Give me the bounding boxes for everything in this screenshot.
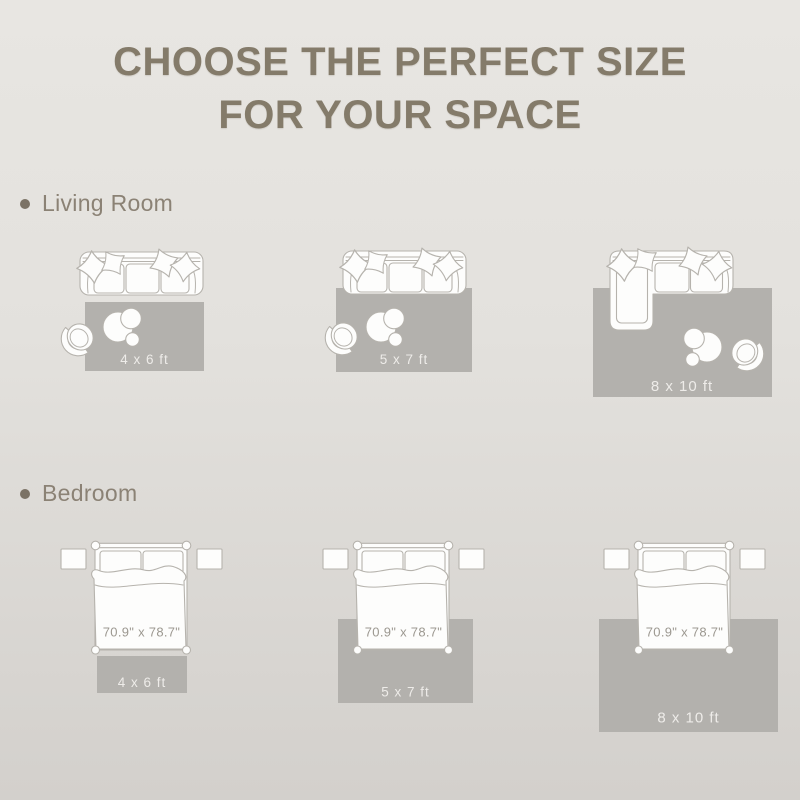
- page-title: CHOOSE THE PERFECT SIZE FOR YOUR SPACE: [0, 36, 800, 142]
- title-line-2: FOR YOUR SPACE: [0, 89, 800, 142]
- rug-size-label: 8 x 10 ft: [657, 710, 719, 727]
- bed-dimension-label: 70.9" x 78.7": [365, 625, 443, 640]
- section-label-bedroom: Bedroom: [20, 480, 137, 507]
- bullet-icon: [20, 199, 30, 209]
- rug-size-label: 4 x 6 ft: [118, 675, 167, 690]
- sofa-illustration-1: [77, 249, 203, 295]
- title-line-1: CHOOSE THE PERFECT SIZE: [0, 36, 800, 89]
- bullet-icon: [20, 489, 30, 499]
- sofa-illustration-2: [340, 248, 466, 294]
- rug-size-label: 4 x 6 ft: [120, 352, 169, 367]
- section-label-text: Living Room: [42, 190, 173, 217]
- bed-dimension-label: 70.9" x 78.7": [103, 625, 181, 640]
- section-label-living-room: Living Room: [20, 190, 173, 217]
- bed-dimension-label: 70.9" x 78.7": [646, 625, 724, 640]
- rug-size-label: 8 x 10 ft: [651, 378, 713, 395]
- rug-size-label: 5 x 7 ft: [381, 685, 430, 700]
- rug-size-label: 5 x 7 ft: [380, 352, 429, 367]
- section-label-text: Bedroom: [42, 480, 137, 507]
